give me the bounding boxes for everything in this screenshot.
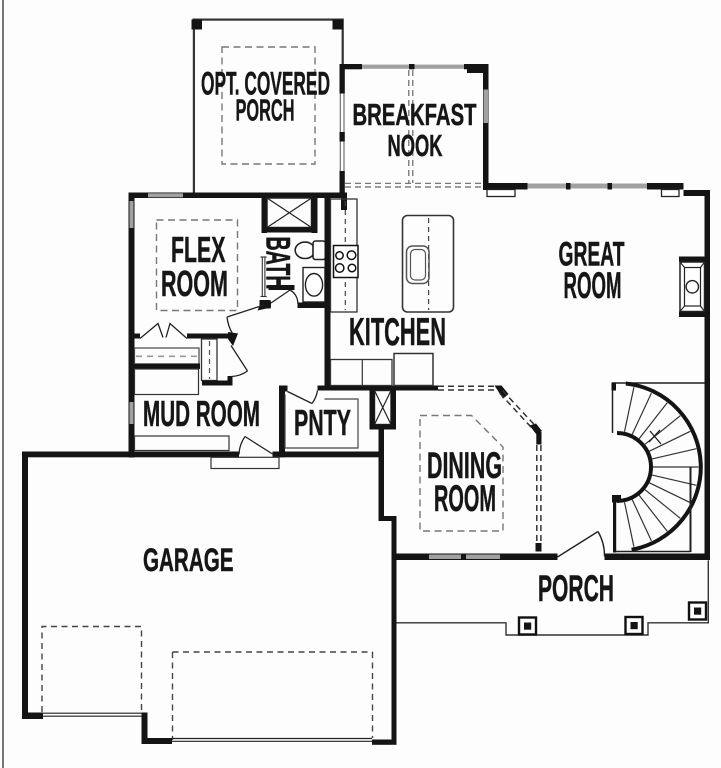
svg-text:PNTY: PNTY xyxy=(294,402,351,443)
svg-text:ROOM: ROOM xyxy=(161,263,228,304)
svg-text:KITCHEN: KITCHEN xyxy=(349,311,446,354)
svg-text:ROOM: ROOM xyxy=(564,264,622,306)
svg-text:BREAKFAST: BREAKFAST xyxy=(353,98,477,132)
svg-text:NOOK: NOOK xyxy=(388,129,443,163)
svg-text:ROOM: ROOM xyxy=(434,477,496,519)
svg-text:PORCH: PORCH xyxy=(236,94,295,128)
svg-text:BATH: BATH xyxy=(259,237,297,290)
svg-text:GARAGE: GARAGE xyxy=(143,542,234,578)
svg-text:PORCH: PORCH xyxy=(538,567,614,609)
svg-text:MUD ROOM: MUD ROOM xyxy=(143,393,260,434)
